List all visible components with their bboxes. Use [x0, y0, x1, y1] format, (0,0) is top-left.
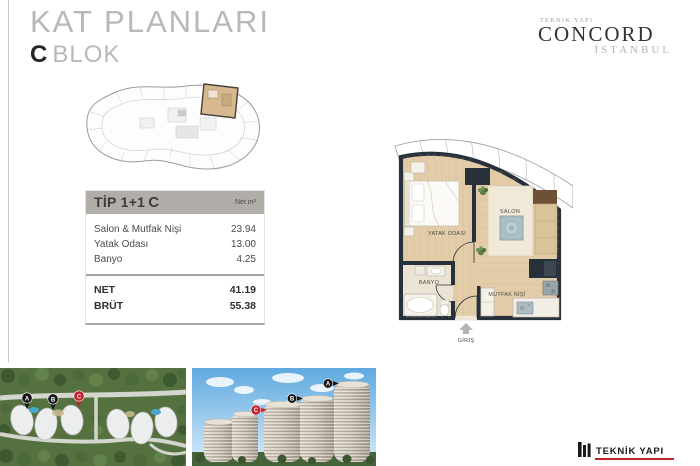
pin-letter: B — [51, 397, 56, 403]
room-label: Yatak Odası — [94, 237, 148, 252]
pin-letter: C — [77, 394, 82, 400]
unit-table-header: TİP 1+1C Net m² — [86, 191, 264, 214]
marker-letter: B — [290, 397, 295, 403]
block-letter: C — [30, 41, 48, 68]
table-row-net: NET 41.19 — [94, 283, 256, 299]
teknik-yapi-logo: TEKNİK YAPI — [578, 441, 698, 460]
unit-type-block: C — [148, 194, 159, 211]
site-map-image: A B C — [0, 368, 186, 466]
tower-c — [264, 401, 302, 462]
left-edge-rule — [8, 0, 9, 362]
unit-table-rows: Salon & Mutfak Nişi 23.94 Yatak Odası 13… — [86, 214, 264, 274]
table-row: Banyo 4.25 — [94, 252, 256, 267]
bedroom-closet — [411, 162, 425, 173]
aerial-site-map: A B C — [0, 368, 186, 466]
bathroom-label: BANYO — [419, 280, 439, 286]
cooktop — [543, 281, 558, 295]
coffee-table — [500, 216, 523, 240]
block-word: BLOK — [52, 41, 120, 68]
table-row-brut: BRÜT 55.38 — [94, 299, 256, 315]
building-footprint-keyplan — [80, 76, 266, 178]
towers-rendering: C B A — [192, 368, 376, 466]
net-value: 41.19 — [230, 283, 256, 299]
concord-istanbul-logo: TEKNİK YAPI CONCORD İSTANBUL — [538, 18, 672, 56]
entrance-threshold — [455, 316, 477, 321]
entrance-arrow-icon — [459, 323, 473, 334]
tower-a — [334, 381, 370, 462]
pool — [29, 407, 39, 413]
teknik-yapi-name: TEKNİK YAPI — [596, 446, 664, 457]
pool — [151, 409, 161, 415]
teknik-yapi-bars-icon — [578, 441, 593, 457]
marker-letter: A — [326, 382, 331, 388]
floor-plan-drawing: YATAK ODASI SALON BANYO MUTFAK NİŞİ GİRİ… — [393, 126, 573, 354]
room-area-value: 23.94 — [231, 222, 256, 237]
brut-label: BRÜT — [94, 299, 123, 315]
footprint-highlighted-unit — [201, 84, 238, 118]
entrance-label: GİRİŞ — [458, 337, 475, 344]
page-title: KAT PLANLARI — [30, 6, 270, 39]
wardrobe-block — [465, 168, 490, 185]
unit-type-title: TİP 1+1C — [94, 194, 159, 211]
marker-letter: C — [254, 408, 259, 414]
footprint-drawing — [80, 76, 266, 178]
bed — [404, 172, 459, 236]
tower — [204, 419, 234, 462]
brochure-page: KAT PLANLARI CBLOK TEKNİK YAPI CONCORD İ… — [0, 0, 700, 466]
table-row: Salon & Mutfak Nişi 23.94 — [94, 222, 256, 237]
net-label: NET — [94, 283, 115, 299]
unit-table-totals: NET 41.19 BRÜT 55.38 — [86, 276, 264, 323]
salon-label: SALON — [500, 209, 520, 215]
brut-value: 55.38 — [230, 299, 256, 315]
block-subtitle: CBLOK — [30, 41, 270, 69]
kitchen-label: MUTFAK NİŞİ — [488, 291, 525, 298]
sofa — [533, 190, 557, 254]
kitchen-sink — [517, 302, 533, 314]
table-row: Yatak Odası 13.00 — [94, 237, 256, 252]
concord-logo-name: CONCORD — [538, 24, 672, 45]
towers-image: C B A — [192, 368, 376, 466]
toilet — [440, 300, 449, 316]
room-label: Banyo — [94, 252, 122, 267]
logo-red-underline — [595, 458, 674, 460]
room-area-value: 13.00 — [231, 237, 256, 252]
bedroom-label: YATAK ODASI — [428, 231, 466, 237]
room-area-value: 4.25 — [237, 252, 256, 267]
unit-type-text: TİP 1+1 — [94, 194, 145, 210]
tower-b — [300, 396, 334, 463]
title-block: KAT PLANLARI CBLOK — [30, 6, 270, 69]
apartment-floor-plan: YATAK ODASI SALON BANYO MUTFAK NİŞİ GİRİ… — [393, 126, 573, 354]
room-label: Salon & Mutfak Nişi — [94, 222, 181, 237]
unit-area-table: TİP 1+1C Net m² Salon & Mutfak Nişi 23.9… — [85, 190, 265, 325]
pin-letter: A — [25, 396, 30, 402]
tower — [232, 411, 258, 462]
unit-table-unit-label: Net m² — [235, 199, 256, 206]
